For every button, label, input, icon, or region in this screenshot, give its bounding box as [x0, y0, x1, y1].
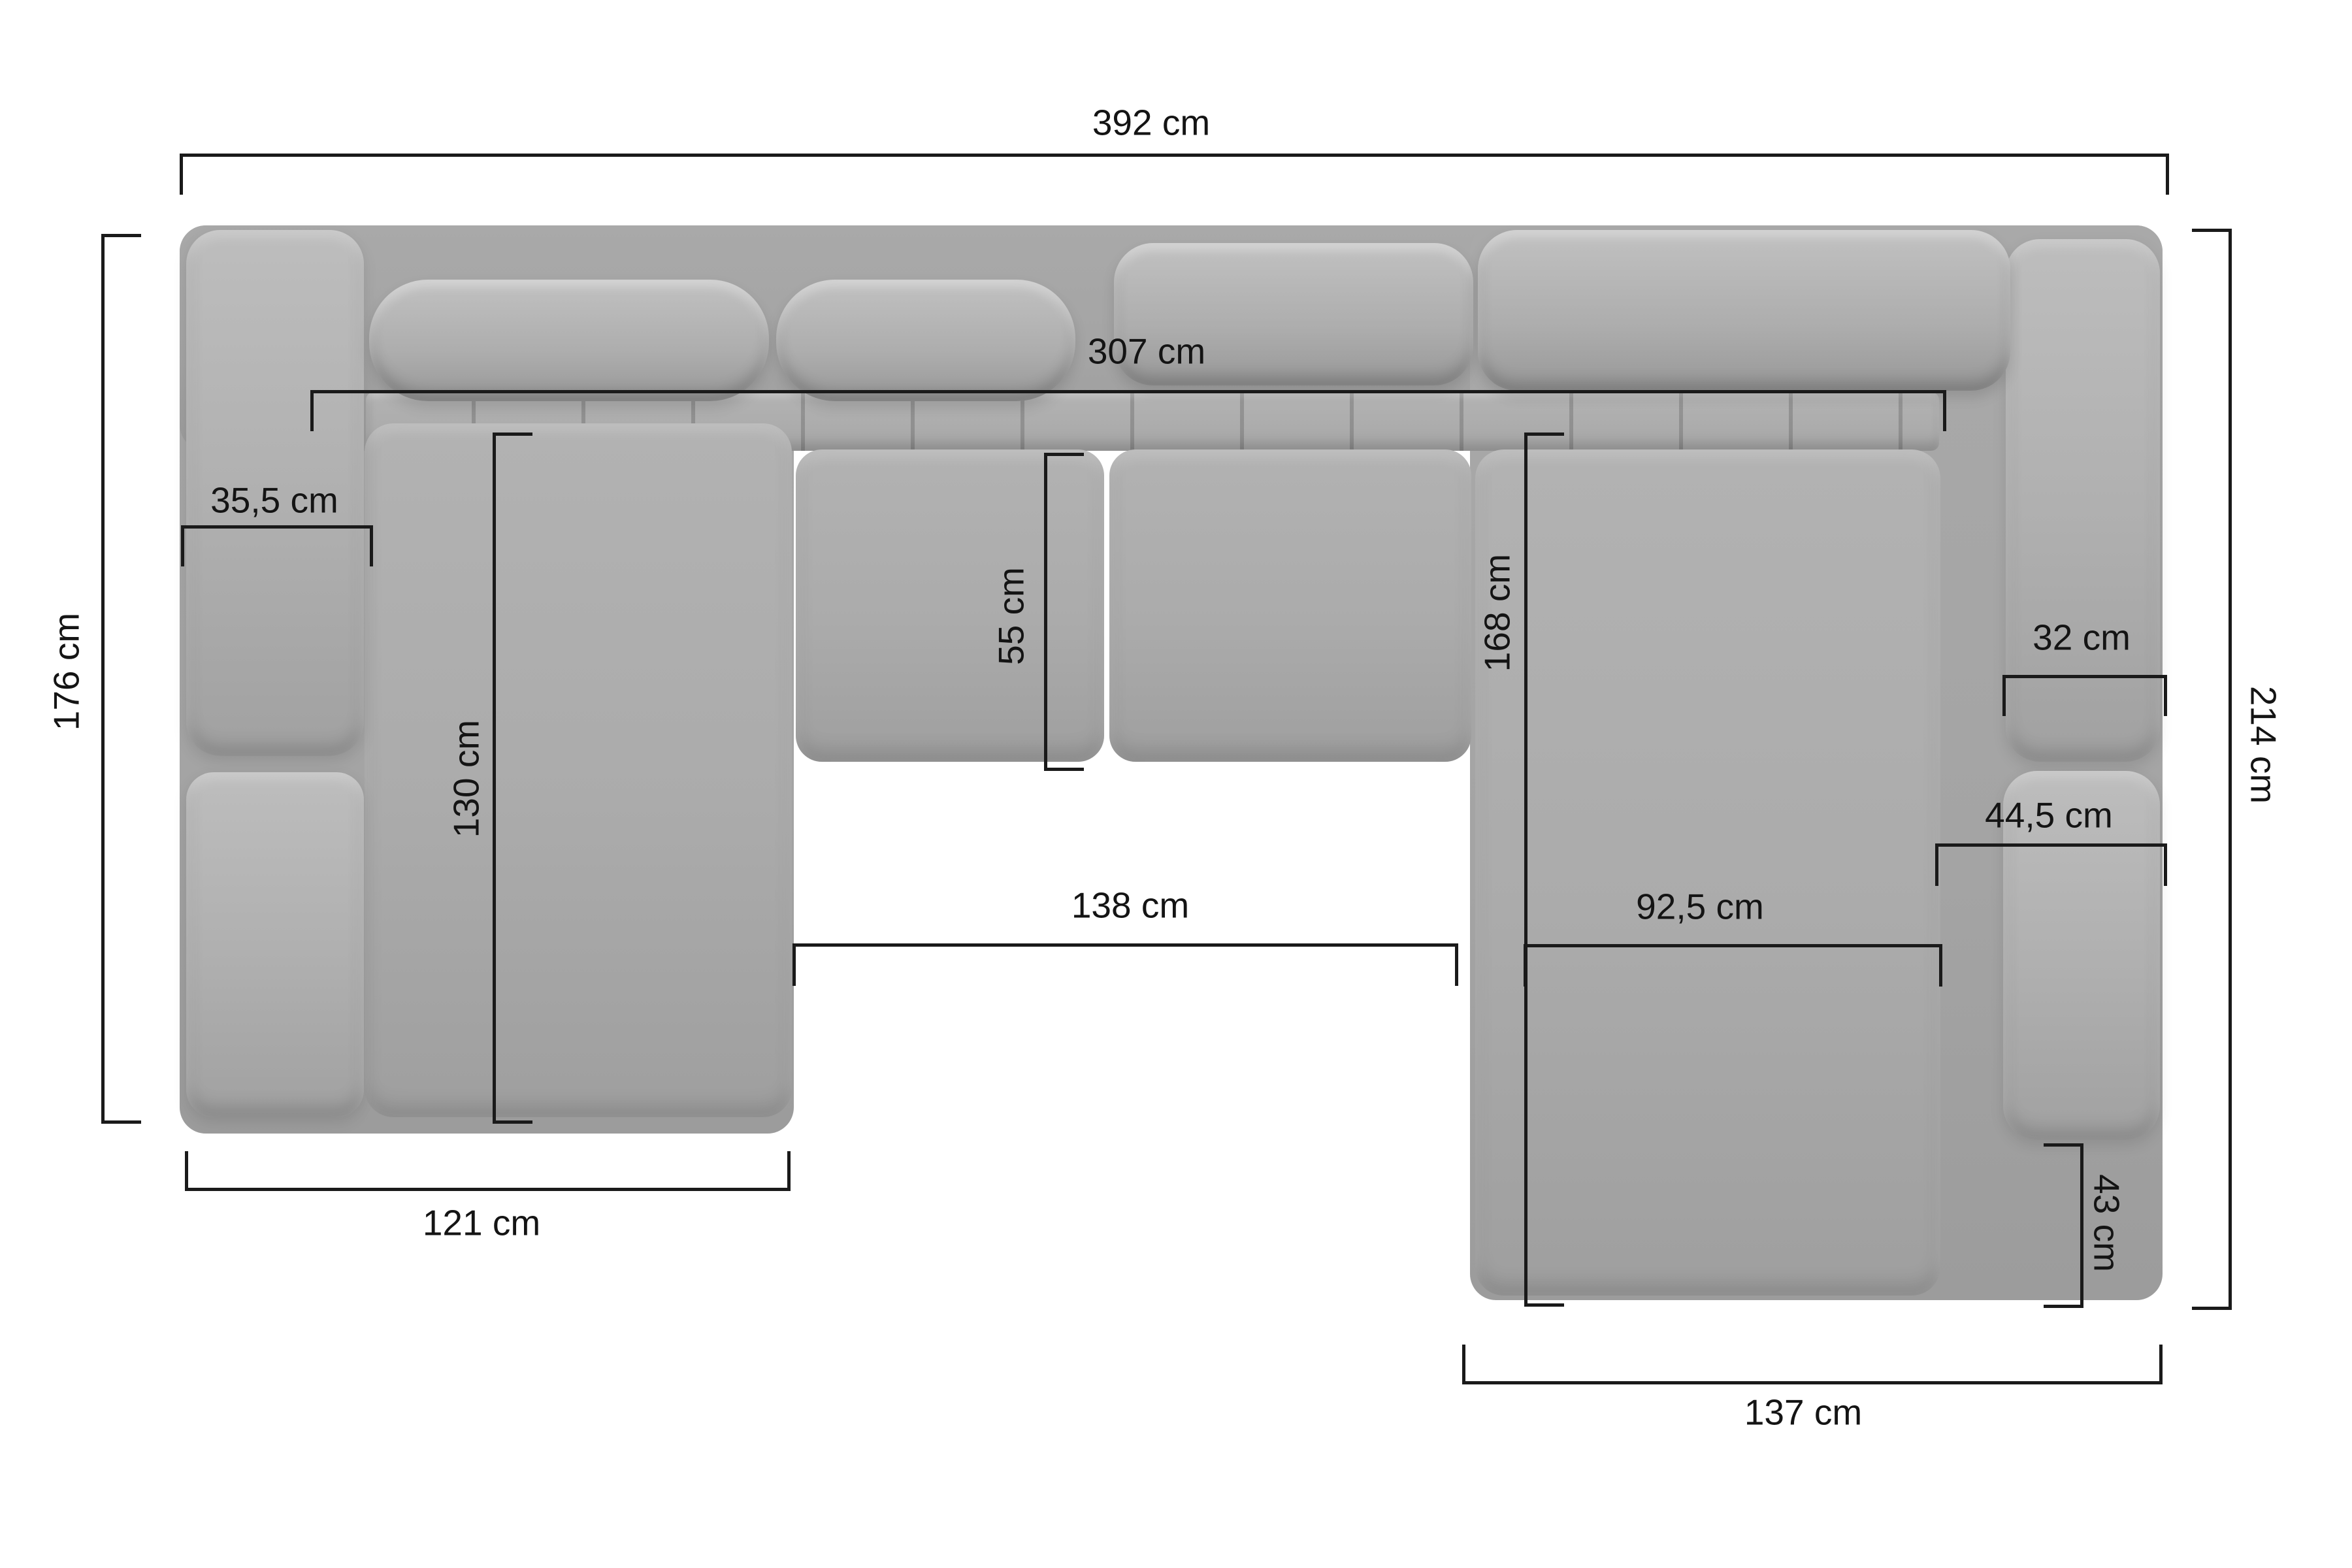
back-cushion-right	[1478, 230, 2010, 391]
dim-right-corner-seat-width-label: 92,5 cm	[1636, 889, 1764, 925]
dim-left-chaise-width-label: 121 cm	[423, 1205, 540, 1241]
dim-left-chaise-length-line	[493, 433, 532, 1124]
dim-middle-seat-depth-label: 55 cm	[994, 567, 1030, 665]
dim-right-chaise-width-label: 137 cm	[1744, 1395, 1862, 1431]
dim-right-chaise-length-line	[1524, 433, 1564, 1307]
dim-right-section-depth-label: 214 cm	[2246, 686, 2281, 804]
dim-left-chaise-length-label: 130 cm	[449, 720, 485, 838]
back-bolster-1	[369, 280, 769, 401]
dim-right-chaise-length-label: 168 cm	[1480, 554, 1516, 672]
left-armrest-lower-cushion	[186, 772, 364, 1117]
dim-right-armrest-width-label: 32 cm	[2033, 620, 2131, 656]
dim-back-width-line	[310, 390, 1946, 431]
dim-left-armrest-width-label: 35,5 cm	[210, 483, 338, 519]
left-chaise-seat	[365, 423, 792, 1117]
back-bolster-2	[776, 280, 1075, 401]
dim-left-armrest-width-line	[181, 525, 373, 566]
sofa-dimension-diagram: 392 cm 307 cm 35,5 cm 176 cm 55 cm 130 c…	[0, 0, 2352, 1568]
dim-right-chaise-armrest-width-line	[1935, 843, 2167, 886]
dim-left-section-depth-label: 176 cm	[49, 613, 85, 730]
middle-seat-2	[1109, 449, 1471, 762]
dim-right-armrest-rear-depth-label: 43 cm	[2089, 1174, 2125, 1272]
dim-middle-seat-depth-line	[1044, 453, 1084, 771]
dim-right-chaise-armrest-width-label: 44,5 cm	[1985, 798, 2113, 834]
dim-inner-gap-width-label: 138 cm	[1071, 888, 1189, 924]
dim-right-armrest-width-line	[2002, 675, 2167, 716]
dim-right-chaise-width-line	[1462, 1345, 2163, 1384]
dim-back-width-label: 307 cm	[1088, 334, 1205, 370]
dim-left-section-depth-line	[101, 234, 141, 1124]
dim-right-armrest-rear-depth-line	[2044, 1143, 2083, 1308]
dim-inner-gap-width-line	[792, 943, 1458, 986]
dim-total-width-label: 392 cm	[1092, 105, 1210, 141]
dim-total-width-line	[180, 154, 2169, 195]
dim-right-section-depth-line	[2192, 229, 2232, 1310]
dim-right-corner-seat-width-line	[1524, 944, 1942, 987]
dim-left-chaise-width-line	[185, 1151, 791, 1191]
